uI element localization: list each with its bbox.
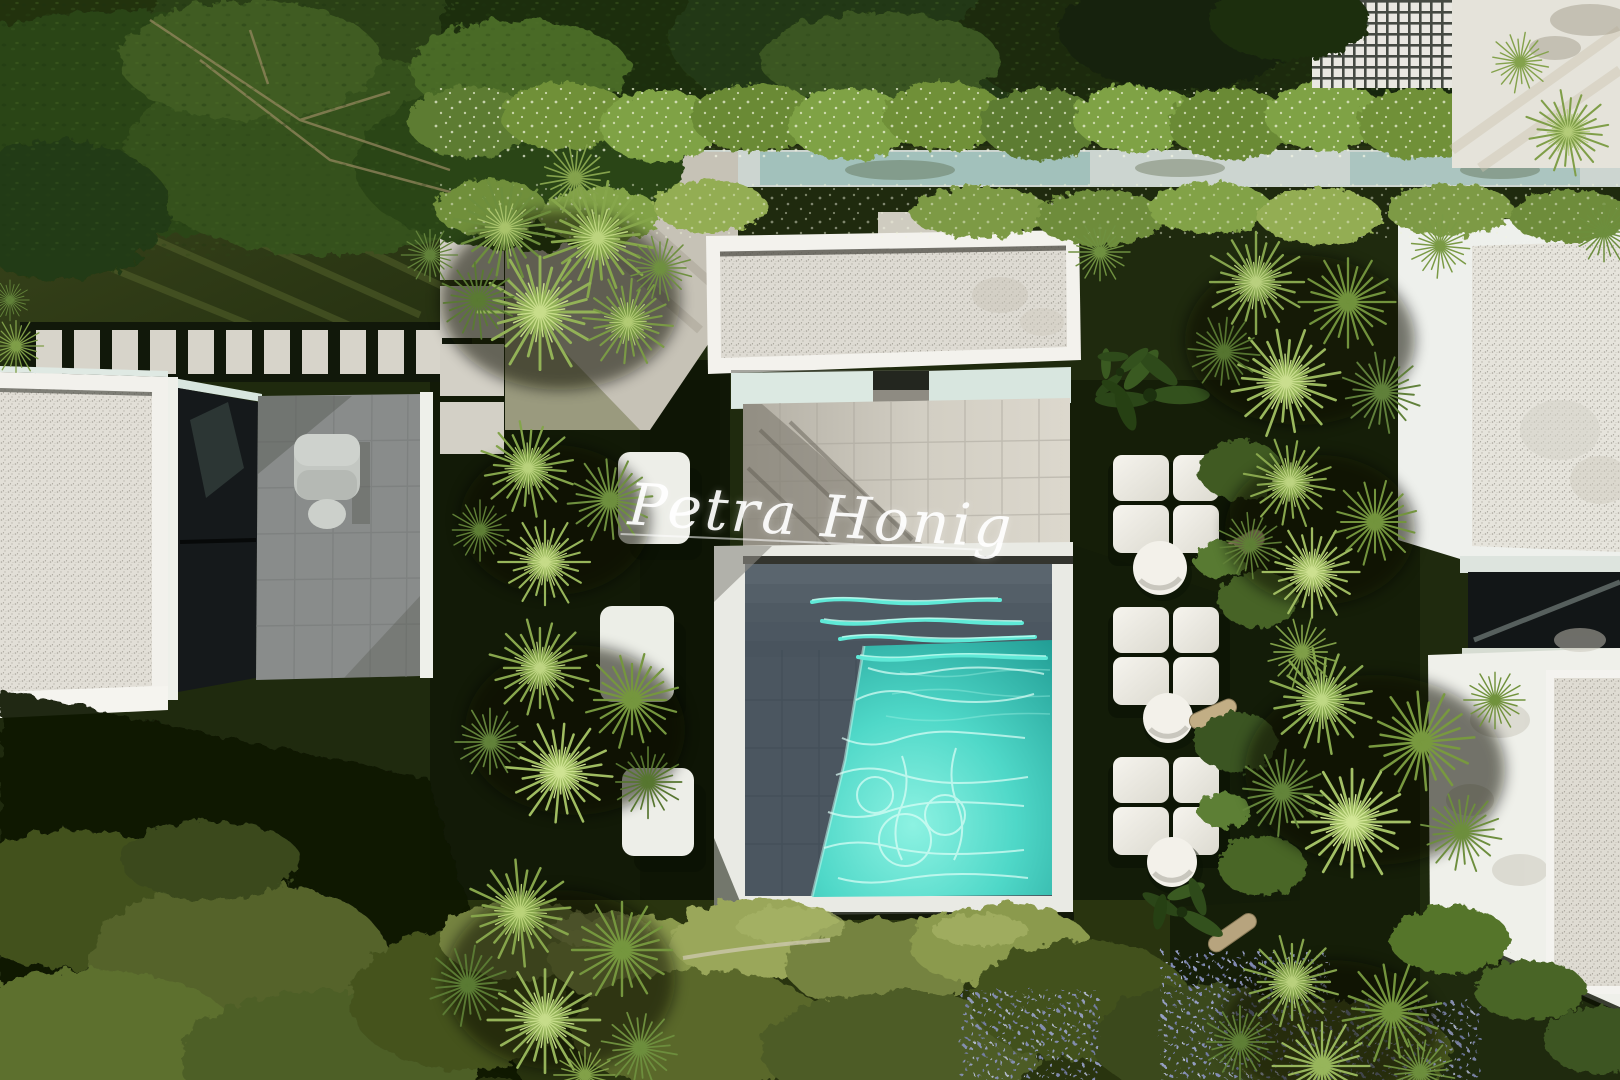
left-villa (0, 366, 433, 718)
scene-render (0, 0, 1620, 1080)
center-villa (706, 212, 1081, 920)
villa-aerial-photo: Petra Honig (0, 0, 1620, 1080)
pool (714, 542, 1074, 920)
